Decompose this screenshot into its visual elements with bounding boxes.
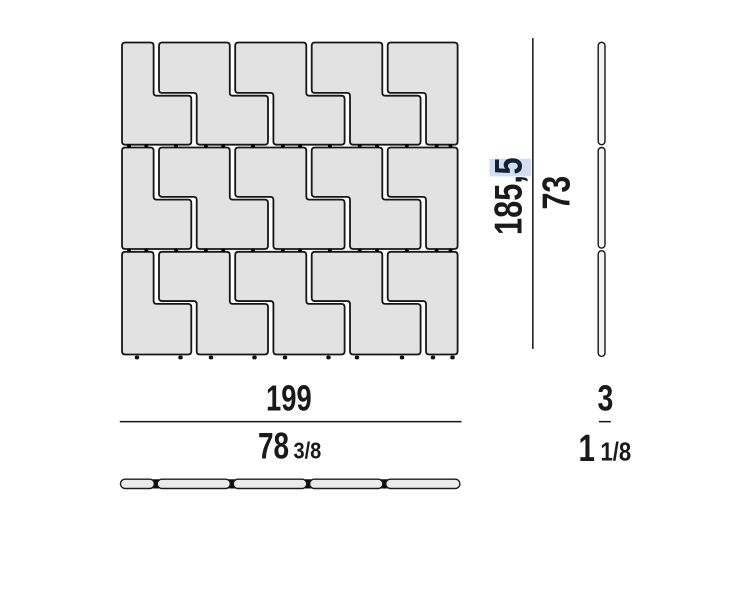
svg-text:3/8: 3/8 bbox=[294, 437, 322, 464]
svg-text:5: 5 bbox=[487, 157, 530, 174]
svg-text:1: 1 bbox=[579, 428, 595, 470]
svg-text:3: 3 bbox=[598, 377, 614, 418]
svg-text:199: 199 bbox=[266, 378, 312, 419]
svg-text:1/8: 1/8 bbox=[601, 438, 632, 467]
svg-text:78: 78 bbox=[258, 425, 289, 467]
svg-text:73: 73 bbox=[535, 176, 578, 210]
svg-text:185,: 185, bbox=[487, 175, 530, 235]
